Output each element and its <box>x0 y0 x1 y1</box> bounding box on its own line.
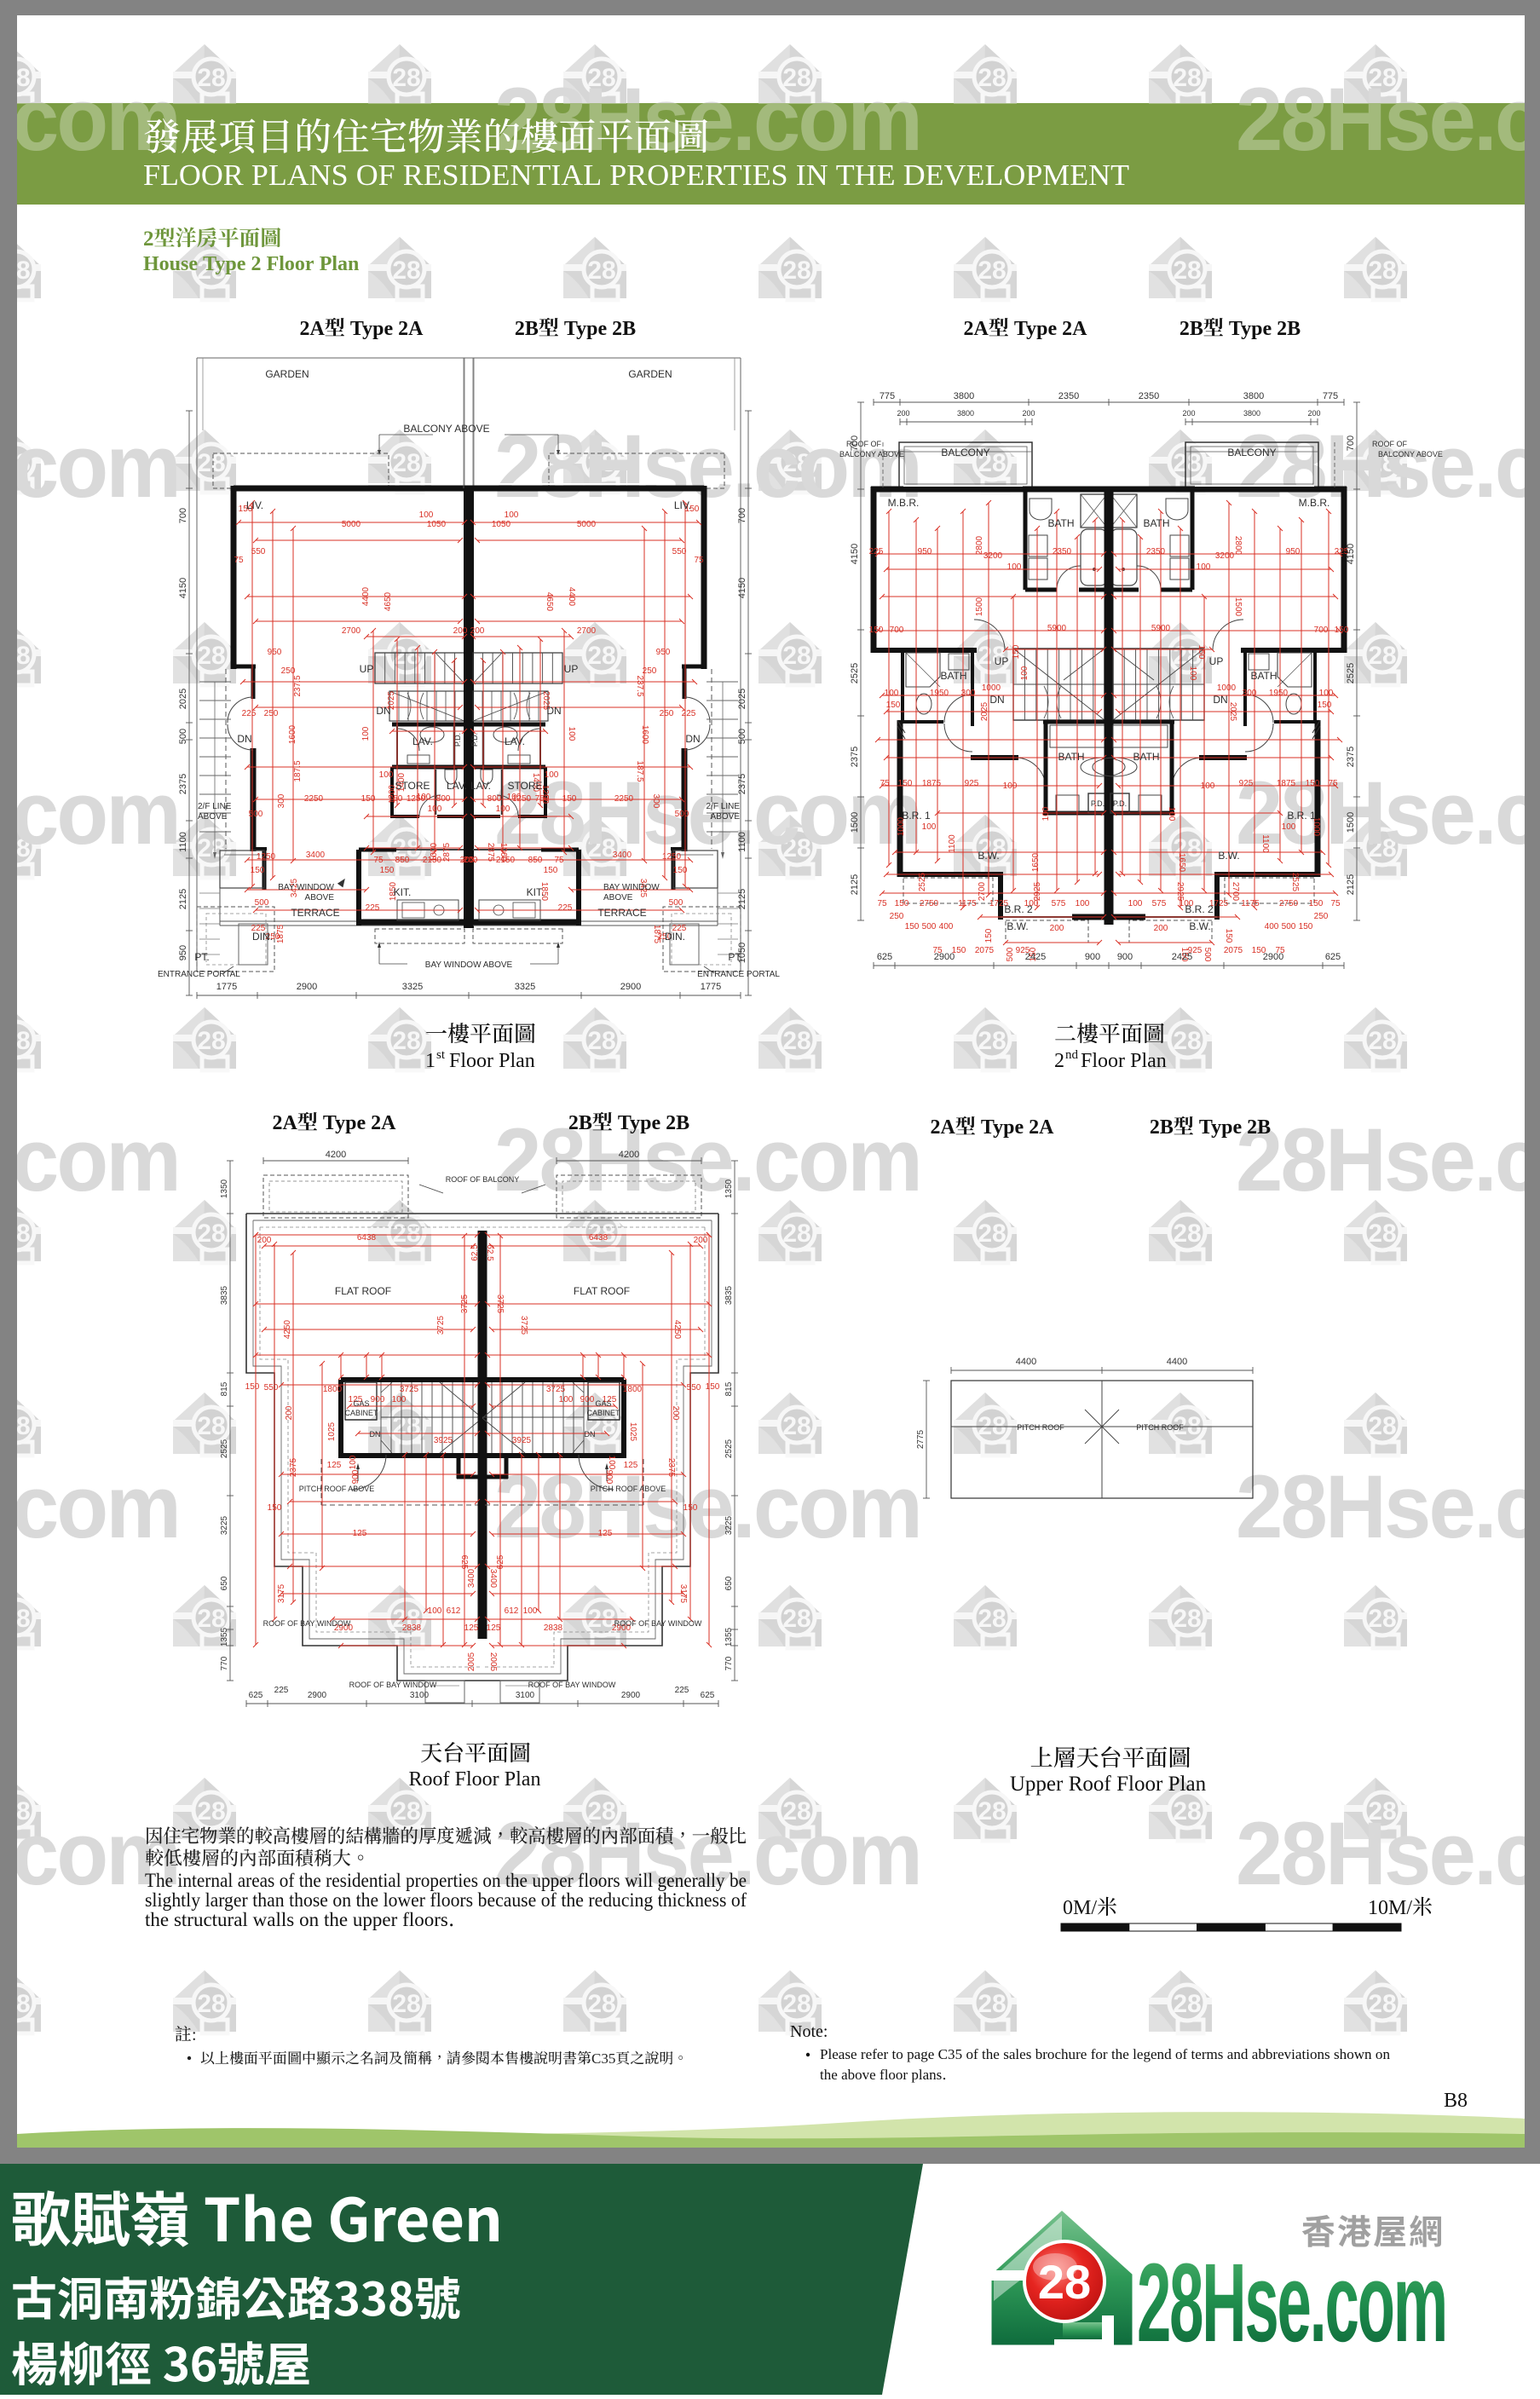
svg-text:1175: 1175 <box>958 899 977 908</box>
svg-text:925: 925 <box>965 779 979 788</box>
svg-text:2005: 2005 <box>467 1652 476 1671</box>
svg-text:3400: 3400 <box>306 851 326 860</box>
svg-text:1: 1 <box>425 1043 435 1073</box>
svg-text:250: 250 <box>281 666 296 676</box>
svg-text:KIT.: KIT. <box>527 886 545 898</box>
svg-text:150: 150 <box>562 794 577 804</box>
svg-text:1950: 1950 <box>1269 689 1289 698</box>
svg-text:1875: 1875 <box>652 925 661 944</box>
svg-text:GAS: GAS <box>353 1399 369 1408</box>
svg-text:1000: 1000 <box>430 842 439 862</box>
svg-text:775: 775 <box>880 391 895 401</box>
svg-text:DN: DN <box>1213 694 1227 706</box>
svg-text:2425: 2425 <box>1025 952 1046 962</box>
svg-text:575: 575 <box>1052 899 1066 908</box>
svg-text:3800: 3800 <box>1243 391 1264 401</box>
svg-text:2125: 2125 <box>850 874 860 895</box>
svg-text:ROOF OF BALCONY: ROOF OF BALCONY <box>446 1175 520 1184</box>
svg-text:100: 100 <box>496 804 510 814</box>
svg-text:2838: 2838 <box>544 1623 563 1633</box>
svg-text:250: 250 <box>890 912 904 921</box>
svg-text:古洞南粉錦公路338號: 古洞南粉錦公路338號 <box>11 2262 461 2329</box>
svg-text:100: 100 <box>1197 562 1211 572</box>
svg-text:75: 75 <box>373 856 384 865</box>
svg-text:2525: 2525 <box>918 872 927 891</box>
svg-text:200: 200 <box>897 409 909 418</box>
svg-text:75: 75 <box>880 779 890 788</box>
svg-text:ENTRANCE PORTAL: ENTRANCE PORTAL <box>158 970 240 979</box>
svg-text:2250: 2250 <box>304 794 324 804</box>
svg-text:100: 100 <box>1020 666 1030 680</box>
svg-text:ROOF OF BAY WINDOW: ROOF OF BAY WINDOW <box>614 1619 702 1628</box>
svg-text:UP: UP <box>1209 655 1224 667</box>
svg-text:3925: 3925 <box>434 1436 453 1445</box>
svg-text:150: 150 <box>895 899 909 908</box>
svg-text:3325: 3325 <box>402 982 423 992</box>
svg-text:100: 100 <box>1282 822 1296 832</box>
svg-text:150: 150 <box>1224 929 1233 943</box>
svg-text:2800: 2800 <box>1233 536 1243 556</box>
svg-text:950: 950 <box>268 648 282 657</box>
svg-text:700: 700 <box>178 508 188 523</box>
svg-text:100: 100 <box>379 770 394 780</box>
svg-text:2025: 2025 <box>737 689 747 709</box>
svg-text:Floor Plan: Floor Plan <box>449 1043 535 1073</box>
svg-text:Upper Roof Floor Plan: Upper Roof Floor Plan <box>1010 1767 1207 1797</box>
svg-text:500: 500 <box>255 898 269 908</box>
svg-text:500: 500 <box>249 810 263 819</box>
svg-text:100: 100 <box>1188 666 1197 681</box>
svg-text:DN: DN <box>685 733 700 745</box>
svg-text:BALCONY: BALCONY <box>1227 447 1276 458</box>
svg-text:5000: 5000 <box>342 520 361 529</box>
svg-text:700: 700 <box>890 626 904 635</box>
svg-text:1000: 1000 <box>982 683 1001 693</box>
svg-text:200: 200 <box>1050 924 1064 933</box>
svg-text:62.5: 62.5 <box>485 1244 494 1261</box>
svg-text:100: 100 <box>885 689 899 698</box>
svg-text:PITCH ROOF: PITCH ROOF <box>1136 1423 1184 1432</box>
svg-text:FLOOR PLANS OF RESIDENTIAL PRO: FLOOR PLANS OF RESIDENTIAL PROPERTIES IN… <box>143 152 1129 194</box>
svg-text:1875: 1875 <box>276 924 286 943</box>
svg-text:400: 400 <box>1265 922 1279 931</box>
svg-text:M.B.R.: M.B.R. <box>888 497 920 509</box>
svg-text:815: 815 <box>724 1381 734 1396</box>
svg-text:500: 500 <box>675 810 689 819</box>
svg-text:the above floor plans.: the above floor plans. <box>820 2062 947 2084</box>
svg-text:850: 850 <box>528 856 543 865</box>
svg-text:250: 250 <box>1314 912 1329 921</box>
svg-text:P.D.: P.D. <box>470 733 479 747</box>
svg-text:125: 125 <box>487 1623 501 1633</box>
svg-text:500: 500 <box>922 922 937 931</box>
svg-text:3325: 3325 <box>515 982 535 992</box>
svg-text:FLAT ROOF: FLAT ROOF <box>335 1285 391 1297</box>
svg-text:Roof Floor Plan: Roof Floor Plan <box>409 1762 541 1791</box>
svg-text:楊柳徑 36號屋: 楊柳徑 36號屋 <box>11 2327 311 2395</box>
svg-text:625: 625 <box>496 1554 505 1569</box>
svg-text:2900: 2900 <box>934 952 955 962</box>
svg-text:B.R. 1: B.R. 1 <box>1287 810 1316 822</box>
svg-text:5900: 5900 <box>1047 624 1067 633</box>
svg-text:500: 500 <box>1282 922 1296 931</box>
svg-text:House Type 2 Floor Plan: House Type 2 Floor Plan <box>143 246 359 276</box>
svg-text:3800: 3800 <box>954 391 974 401</box>
svg-text:150: 150 <box>673 866 688 875</box>
svg-text:100: 100 <box>545 770 559 780</box>
svg-text:2A型 Type 2A: 2A型 Type 2A <box>273 1105 397 1135</box>
svg-text:3725: 3725 <box>495 1295 505 1314</box>
svg-text:BALCONY ABOVE: BALCONY ABOVE <box>403 423 489 435</box>
svg-text:3800: 3800 <box>1243 409 1260 418</box>
svg-text:150: 150 <box>1318 701 1332 710</box>
svg-text:150: 150 <box>683 1503 698 1513</box>
svg-text:770: 770 <box>220 1656 229 1670</box>
svg-text:200: 200 <box>694 1236 708 1245</box>
svg-text:3225: 3225 <box>724 1515 734 1535</box>
svg-text:28Hse.com: 28Hse.com <box>1137 2240 1446 2365</box>
svg-text:900: 900 <box>351 1469 360 1484</box>
svg-text:225: 225 <box>366 903 380 913</box>
svg-text:100: 100 <box>607 1456 616 1470</box>
svg-text:575: 575 <box>1152 899 1167 908</box>
svg-text:225: 225 <box>682 709 696 718</box>
svg-text:625: 625 <box>877 952 892 962</box>
svg-text:3225: 3225 <box>220 1515 229 1535</box>
svg-text:2B型 Type 2B: 2B型 Type 2B <box>515 311 636 341</box>
svg-text:B.R. 2: B.R. 2 <box>1185 903 1214 915</box>
svg-text:M.B.R.: M.B.R. <box>1299 497 1330 509</box>
svg-text:900: 900 <box>1117 952 1133 962</box>
svg-text:ABOVE: ABOVE <box>198 812 228 822</box>
svg-text:3725: 3725 <box>436 1315 446 1335</box>
svg-text:75: 75 <box>1328 779 1338 788</box>
svg-text:200: 200 <box>671 1406 680 1421</box>
svg-text:2425: 2425 <box>1172 952 1192 962</box>
svg-text:1650: 1650 <box>1031 852 1041 872</box>
svg-text:1025: 1025 <box>327 1422 337 1441</box>
svg-text:2125: 2125 <box>178 889 188 909</box>
svg-text:150: 150 <box>1309 899 1324 908</box>
svg-text:DN: DN <box>237 733 251 745</box>
svg-text:900: 900 <box>580 1395 595 1404</box>
svg-text:100: 100 <box>1167 807 1176 822</box>
svg-text:2005: 2005 <box>488 1652 498 1672</box>
svg-text:st: st <box>436 1045 446 1063</box>
svg-text:150: 150 <box>245 1382 260 1392</box>
svg-text:625: 625 <box>1325 952 1341 962</box>
svg-text:100: 100 <box>1076 899 1090 908</box>
svg-text:2350: 2350 <box>1146 547 1166 556</box>
svg-text:62.5: 62.5 <box>470 1244 480 1261</box>
svg-text:4200: 4200 <box>619 1150 639 1160</box>
svg-text:ABOVE: ABOVE <box>603 893 633 903</box>
svg-text:100: 100 <box>428 804 442 814</box>
svg-text:3725: 3725 <box>460 1294 470 1313</box>
svg-text:625: 625 <box>459 1555 469 1570</box>
svg-text:4400: 4400 <box>567 587 576 607</box>
svg-text:2800: 2800 <box>975 535 984 555</box>
svg-text:225: 225 <box>558 903 573 913</box>
svg-text:3200: 3200 <box>983 551 1003 561</box>
svg-text:200: 200 <box>285 1405 294 1420</box>
svg-text:4650: 4650 <box>384 591 393 611</box>
svg-text:770: 770 <box>724 1656 734 1670</box>
svg-text:1600: 1600 <box>288 724 297 744</box>
svg-text:ROOF OF: ROOF OF <box>1372 440 1407 448</box>
svg-text:P.D.: P.D. <box>1113 799 1127 808</box>
svg-text:B.W.: B.W. <box>978 850 999 862</box>
svg-text:1250: 1250 <box>662 852 682 862</box>
svg-text:150: 150 <box>886 701 901 710</box>
svg-text:200: 200 <box>257 1236 272 1245</box>
svg-text:950: 950 <box>918 547 932 556</box>
svg-text:1100: 1100 <box>948 834 957 853</box>
svg-text:4150: 4150 <box>850 544 860 564</box>
svg-text:B8: B8 <box>1444 2083 1468 2113</box>
svg-text:2525: 2525 <box>850 663 860 683</box>
svg-text:550: 550 <box>264 1383 279 1393</box>
svg-text:2025: 2025 <box>1228 702 1237 722</box>
svg-text:200: 200 <box>464 856 478 865</box>
svg-text:LAV.: LAV. <box>505 735 525 747</box>
svg-text:3400: 3400 <box>613 851 632 860</box>
svg-text:PITCH ROOF ABOVE: PITCH ROOF ABOVE <box>591 1485 666 1493</box>
svg-text:2700: 2700 <box>577 626 597 636</box>
svg-text:P.D.: P.D. <box>453 733 462 747</box>
svg-text:2925: 2925 <box>1033 881 1042 901</box>
svg-text:4150: 4150 <box>1346 544 1356 564</box>
svg-text:4150: 4150 <box>178 578 188 598</box>
svg-text:100: 100 <box>428 1606 442 1616</box>
svg-text:1000: 1000 <box>1217 683 1237 693</box>
svg-text:ABOVE: ABOVE <box>711 812 741 822</box>
svg-text:3725: 3725 <box>400 1385 419 1394</box>
svg-text:100: 100 <box>1128 899 1143 908</box>
svg-text:1875: 1875 <box>1277 779 1296 788</box>
svg-text:925: 925 <box>1239 779 1254 788</box>
svg-text:700: 700 <box>737 508 747 523</box>
svg-text:3835: 3835 <box>724 1285 734 1305</box>
svg-text:2375: 2375 <box>737 774 747 794</box>
svg-text:150: 150 <box>380 866 395 875</box>
svg-text:B.R. 2: B.R. 2 <box>1004 903 1033 915</box>
svg-text:150: 150 <box>251 866 265 875</box>
svg-text:300: 300 <box>651 794 660 809</box>
svg-text:100: 100 <box>349 1455 358 1469</box>
svg-text:註:: 註: <box>175 2021 197 2045</box>
svg-text:1100: 1100 <box>178 832 188 852</box>
svg-text:700: 700 <box>1346 435 1356 451</box>
svg-text:150: 150 <box>869 626 884 635</box>
svg-text:900: 900 <box>371 1395 385 1404</box>
svg-text:2A型 Type 2A: 2A型 Type 2A <box>300 311 424 341</box>
svg-text:500: 500 <box>737 729 747 744</box>
svg-text:150: 150 <box>706 1382 720 1392</box>
svg-text:4150: 4150 <box>737 578 747 598</box>
svg-text:2375: 2375 <box>178 774 188 794</box>
svg-text:ROOF OF BAY WINDOW: ROOF OF BAY WINDOW <box>349 1681 437 1689</box>
svg-text:LAV.: LAV. <box>470 780 491 792</box>
svg-text:2025: 2025 <box>178 689 188 709</box>
svg-text:B.R. 1: B.R. 1 <box>902 810 931 822</box>
svg-text:187.5: 187.5 <box>293 760 303 781</box>
svg-text:Note:: Note: <box>790 2017 828 2042</box>
svg-text:28: 28 <box>1038 2255 1091 2309</box>
svg-text:150: 150 <box>898 779 913 788</box>
svg-text:650: 650 <box>220 1576 229 1590</box>
svg-text:1000: 1000 <box>499 843 508 862</box>
svg-text:200: 200 <box>453 626 468 636</box>
svg-text:237.5: 237.5 <box>293 675 303 696</box>
svg-text:1800: 1800 <box>623 1385 643 1394</box>
svg-text:75: 75 <box>234 556 244 565</box>
svg-text:125: 125 <box>353 1529 367 1538</box>
svg-text:225: 225 <box>675 1686 689 1695</box>
svg-text:1500: 1500 <box>850 812 860 833</box>
svg-text:612: 612 <box>505 1606 519 1616</box>
svg-text:DN: DN <box>989 694 1004 706</box>
svg-text:DN: DN <box>376 705 390 717</box>
svg-text:612: 612 <box>447 1606 461 1616</box>
svg-text:2025: 2025 <box>980 701 989 721</box>
svg-text:LIV.: LIV. <box>674 499 691 511</box>
svg-text:BATH: BATH <box>1133 751 1159 763</box>
svg-text:0M/米: 0M/米 <box>1063 1890 1117 1920</box>
svg-text:4400: 4400 <box>361 586 371 606</box>
svg-text:以上樓面平面圖中顯示之名詞及簡稱，請參閱本售樓說明書第C35: 以上樓面平面圖中顯示之名詞及簡稱，請參閱本售樓說明書第C35頁之說明。 <box>200 2046 688 2067</box>
svg-text:625: 625 <box>249 1691 263 1700</box>
svg-text:900: 900 <box>604 1470 614 1485</box>
svg-text:225: 225 <box>869 547 884 556</box>
svg-text:Please refer to page C35 of th: Please refer to page C35 of the sales br… <box>820 2043 1390 2063</box>
svg-text:200: 200 <box>1022 409 1035 418</box>
svg-text:BAY WINDOW ABOVE: BAY WINDOW ABOVE <box>425 960 513 970</box>
svg-text:100: 100 <box>523 1606 538 1616</box>
svg-text:250: 250 <box>660 709 674 718</box>
svg-text:UP: UP <box>995 655 1009 667</box>
svg-text:1100: 1100 <box>737 832 747 852</box>
svg-text:100: 100 <box>507 793 522 802</box>
svg-text:2375: 2375 <box>289 1457 298 1477</box>
svg-text:1350: 1350 <box>220 1179 229 1198</box>
svg-text:ROOF OF BAY WINDOW: ROOF OF BAY WINDOW <box>263 1619 351 1628</box>
svg-text:P.D.: P.D. <box>1091 799 1105 808</box>
svg-text:nd: nd <box>1065 1045 1079 1063</box>
svg-text:100: 100 <box>505 510 519 520</box>
svg-text:1500: 1500 <box>975 597 984 616</box>
svg-text:2875: 2875 <box>442 842 452 862</box>
svg-text:500: 500 <box>1006 947 1015 961</box>
svg-text:2875: 2875 <box>486 843 495 862</box>
svg-text:5000: 5000 <box>577 520 597 529</box>
svg-text:DN: DN <box>370 1430 381 1439</box>
svg-text:500: 500 <box>669 898 683 908</box>
svg-text:2700: 2700 <box>1231 882 1240 902</box>
svg-text:1050: 1050 <box>737 943 747 963</box>
svg-text:550: 550 <box>672 547 687 556</box>
svg-text:UP: UP <box>564 663 579 675</box>
svg-text:75: 75 <box>694 556 704 565</box>
svg-text:150: 150 <box>361 794 376 804</box>
svg-text:225: 225 <box>274 1686 289 1695</box>
svg-text:2125: 2125 <box>737 889 747 909</box>
svg-text:GARDEN: GARDEN <box>265 368 309 380</box>
svg-text:1250: 1250 <box>257 852 276 862</box>
svg-text:BATH: BATH <box>1250 670 1277 682</box>
svg-text:1025: 1025 <box>628 1422 637 1442</box>
svg-text:100: 100 <box>419 510 434 520</box>
svg-text:100: 100 <box>1003 781 1018 791</box>
svg-text:2775: 2775 <box>916 1429 926 1449</box>
svg-text:125: 125 <box>598 1529 613 1538</box>
svg-text:PT.: PT. <box>194 951 209 963</box>
svg-text:BATH: BATH <box>1058 751 1084 763</box>
svg-text:CABINET: CABINET <box>344 1409 378 1417</box>
svg-text:BATH: BATH <box>940 670 966 682</box>
svg-text:2125: 2125 <box>1346 874 1356 895</box>
svg-text:2525: 2525 <box>1290 873 1300 892</box>
svg-text:200: 200 <box>470 626 485 636</box>
svg-text:PITCH ROOF ABOVE: PITCH ROOF ABOVE <box>299 1485 375 1493</box>
svg-text:TERRACE: TERRACE <box>597 907 646 919</box>
svg-text:950: 950 <box>178 945 188 960</box>
svg-text:950: 950 <box>656 648 671 657</box>
svg-text:1355: 1355 <box>724 1627 734 1646</box>
svg-text:1355: 1355 <box>220 1627 229 1646</box>
svg-text:2375: 2375 <box>666 1458 676 1478</box>
svg-text:B.W.: B.W. <box>1006 920 1028 932</box>
svg-text:the structural walls on the up: the structural walls on the upper floors… <box>145 1904 454 1932</box>
svg-text:2350: 2350 <box>1058 391 1079 401</box>
svg-text:6438: 6438 <box>357 1233 377 1243</box>
svg-text:BATH: BATH <box>1047 517 1074 529</box>
svg-text:ABOVE: ABOVE <box>305 893 335 903</box>
svg-text:125: 125 <box>464 1623 479 1633</box>
svg-text:BALCONY ABOVE: BALCONY ABOVE <box>1378 450 1443 458</box>
svg-text:300: 300 <box>961 689 976 698</box>
svg-text:237.5: 237.5 <box>635 675 644 696</box>
svg-text:1175: 1175 <box>1241 899 1260 908</box>
svg-text:DN: DN <box>585 1430 596 1439</box>
svg-text:815: 815 <box>220 1381 229 1396</box>
svg-text:1050: 1050 <box>492 520 511 529</box>
svg-text:2900: 2900 <box>1263 952 1283 962</box>
svg-text:3725: 3725 <box>519 1316 528 1335</box>
svg-text:TERRACE: TERRACE <box>291 907 339 919</box>
svg-text:2350: 2350 <box>1053 547 1072 556</box>
svg-text:4250: 4250 <box>672 1320 682 1340</box>
svg-text:75: 75 <box>877 899 887 908</box>
svg-text:2B型 Type 2B: 2B型 Type 2B <box>1180 311 1301 341</box>
svg-text:100: 100 <box>567 727 576 741</box>
svg-text:1500: 1500 <box>1233 597 1243 617</box>
svg-text:100: 100 <box>922 822 937 832</box>
svg-text:2075: 2075 <box>1224 946 1243 955</box>
svg-text:2/F LINE: 2/F LINE <box>198 802 232 811</box>
svg-text:LIV.: LIV. <box>246 499 263 511</box>
svg-text:1050: 1050 <box>427 520 447 529</box>
svg-text:100: 100 <box>417 793 431 802</box>
svg-text:1875: 1875 <box>922 779 942 788</box>
svg-text:4400: 4400 <box>1016 1357 1036 1367</box>
svg-text:4400: 4400 <box>1167 1357 1187 1367</box>
svg-text:500: 500 <box>178 729 188 744</box>
svg-text:500: 500 <box>1203 948 1212 962</box>
svg-text:UP: UP <box>360 663 374 675</box>
svg-text:1775: 1775 <box>701 982 721 992</box>
svg-text:2A型 Type 2A: 2A型 Type 2A <box>964 311 1088 341</box>
